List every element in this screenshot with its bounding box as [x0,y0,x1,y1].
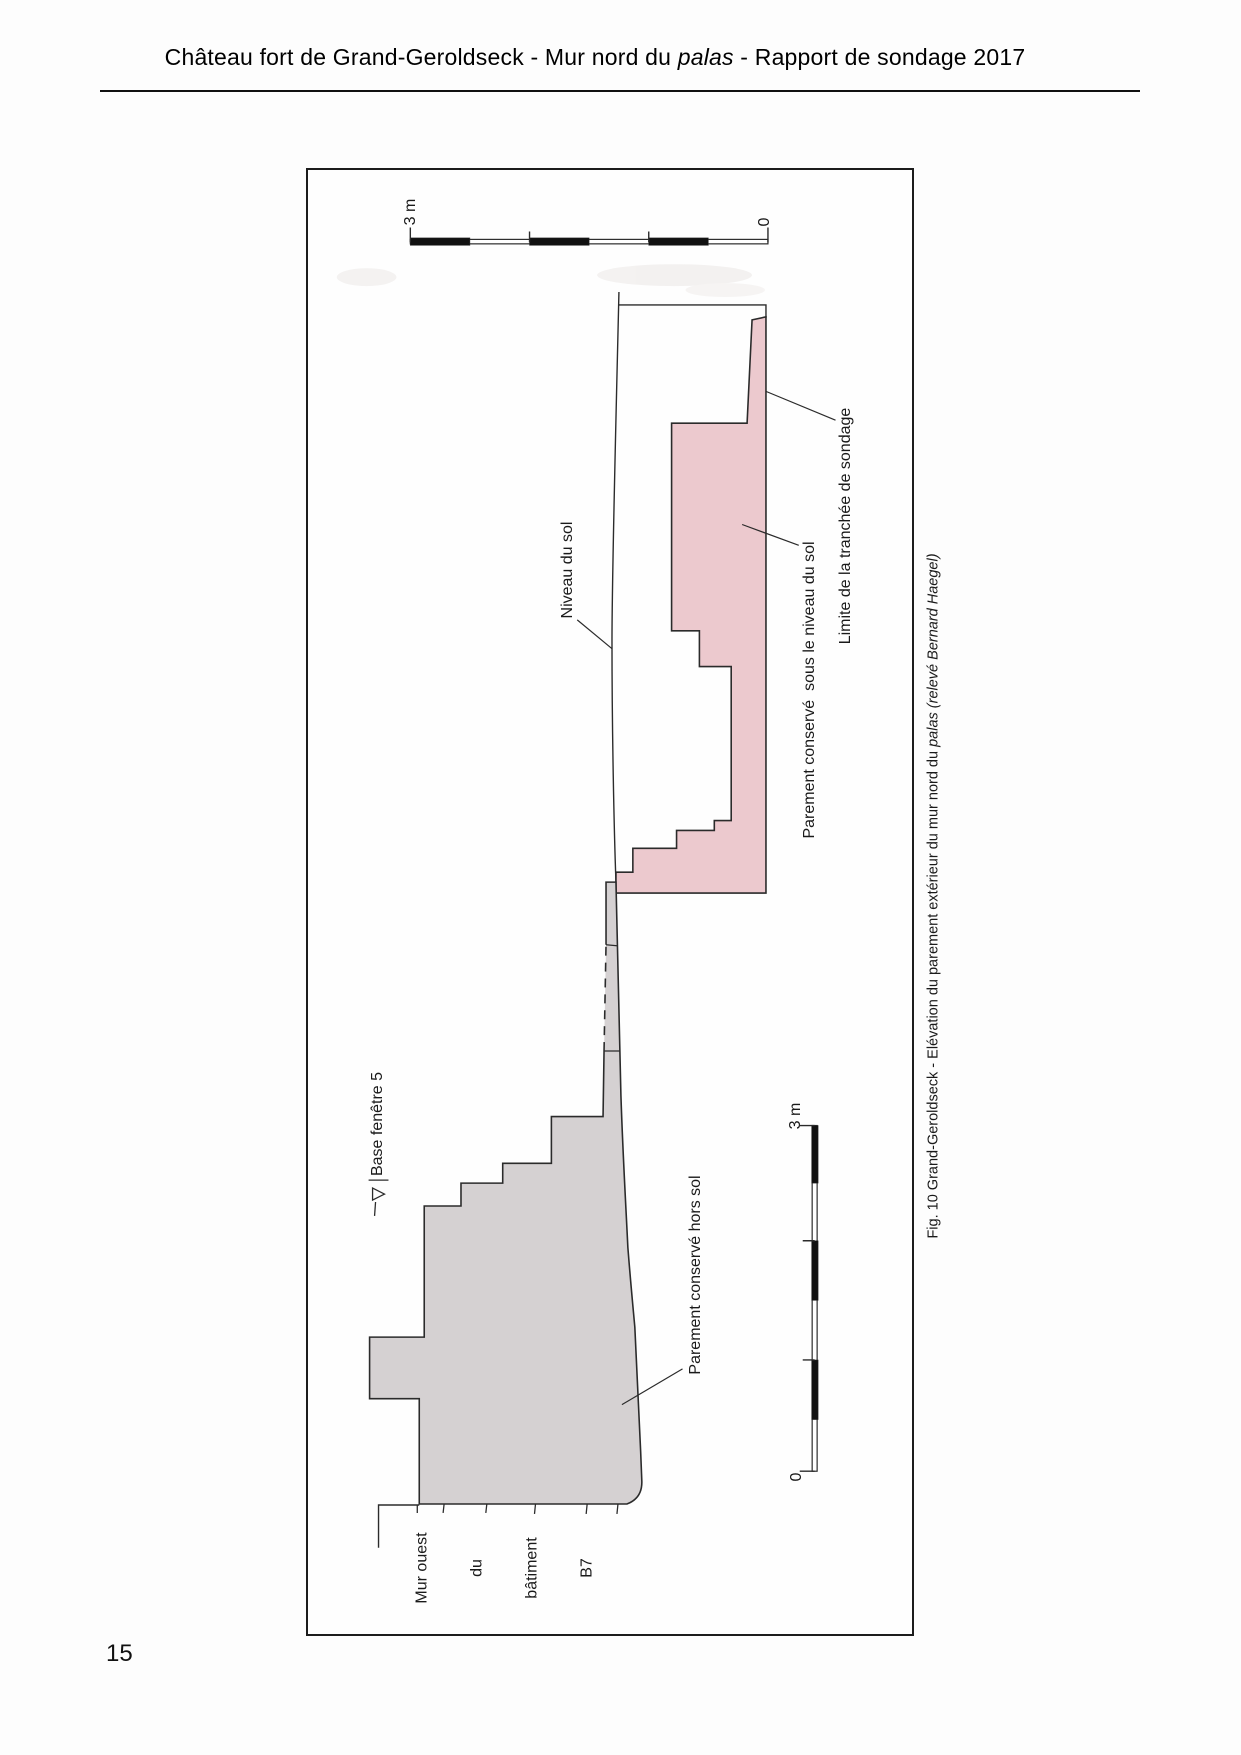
report-page: Château fort de Grand-Geroldseck - Mur n… [0,0,1241,1755]
scale-bar-bottom [800,1126,818,1472]
facing-above-ground-shape [370,882,642,1548]
header-rule [100,90,1140,92]
trench-limit-line [619,305,766,318]
facing-below-ground-shape [616,317,766,893]
scale-bar-top [410,227,768,245]
leader-limite-tranchee [766,391,836,420]
scan-smudges [337,264,765,297]
page-title: Château fort de Grand-Geroldseck - Mur n… [0,44,1190,71]
leader-niveau-du-sol [577,620,612,649]
elevation-drawing [308,170,912,1634]
page-title-italic: palas [678,44,734,70]
base-ticks [417,1504,618,1514]
datum-marker [369,1180,389,1216]
ground-level-line [612,292,619,882]
figure-frame [306,168,914,1636]
page-number: 15 [106,1640,133,1668]
